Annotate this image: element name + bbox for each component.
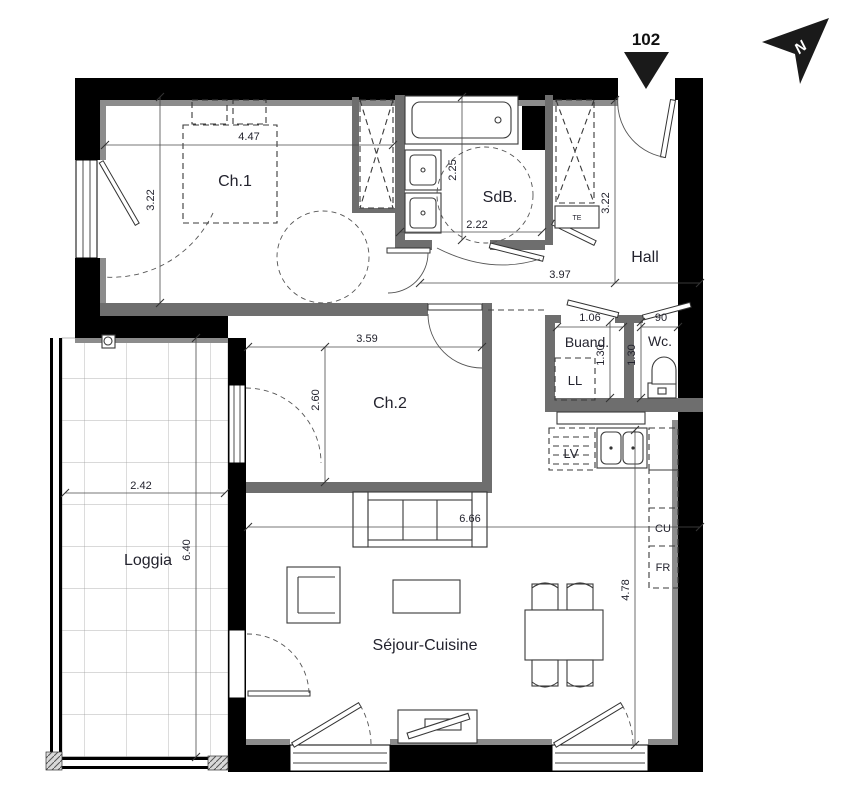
floor-plan-svg: Ch.1 SdB. Hall Buand. Wc. Ch.2 Loggia Sé… [0,0,855,800]
loggia-floor [62,338,228,757]
unit-number: 102 [632,30,660,49]
room-label-wc: Wc. [648,333,672,349]
dim-ch1-depth: 3.22 [145,189,157,210]
dim-sdb-depth: 2.25 [447,159,459,180]
dim-ch2-width: 3.59 [356,333,377,345]
room-label-sdb: SdB. [483,189,518,206]
cooker-label: CU [655,523,671,535]
dim-sejour-depth: 4.78 [620,579,632,600]
wardrobe-ch1 [360,100,393,208]
dim-wc-depth: 1.30 [626,344,638,365]
bathtub [405,96,518,144]
dim-loggia-depth: 6.40 [181,539,193,560]
counter-ledge [557,412,645,424]
dim-buand-depth: 1.30 [595,344,607,365]
dining-set [525,583,603,687]
washer-label: LL [568,373,582,388]
dishwasher-label: LV [564,446,579,461]
dim-ch1-width: 4.47 [238,131,259,143]
dim-hall-width: 3.97 [549,269,570,281]
armchair [287,567,340,623]
kitchen-sink [597,428,647,468]
unit-marker: 102 [624,30,669,89]
ch1-door [387,248,430,293]
floor-plan-page: Ch.1 SdB. Hall Buand. Wc. Ch.2 Loggia Sé… [0,0,855,800]
dim-ch2-depth: 2.60 [310,389,322,410]
tv-sideboard [398,710,477,743]
room-label-ch1: Ch.1 [218,173,252,190]
sejour-french-window-1 [290,703,390,771]
bed [183,100,277,223]
north-arrow-icon: N [762,18,829,84]
room-label-hall: Hall [631,249,659,266]
entrance-marker-icon [624,52,669,89]
dim-loggia-width: 2.42 [130,480,151,492]
electrical-label: TE [573,215,582,222]
dim-sejour-width: 6.66 [459,513,480,525]
dim-hall-depth: 3.22 [600,192,612,213]
room-label-ch2: Ch.2 [373,395,407,412]
dim-wc-width: 90 [655,312,667,324]
turning-circle-ch1 [277,211,369,303]
ch2-loggia-window [229,385,321,463]
dim-buand-width: 1.06 [579,312,600,324]
loggia-sejour-door [229,630,310,698]
coffee-table [393,580,460,613]
sejour-french-window-2 [552,703,648,771]
fridge-label: FR [656,562,671,574]
dim-sdb-width: 2.22 [466,219,487,231]
wardrobe-hall [556,100,594,203]
washbasins [405,150,441,233]
toilet [648,357,676,398]
room-label-sejour: Séjour-Cuisine [373,637,478,654]
room-label-loggia: Loggia [124,552,172,569]
entrance-door [618,96,676,158]
